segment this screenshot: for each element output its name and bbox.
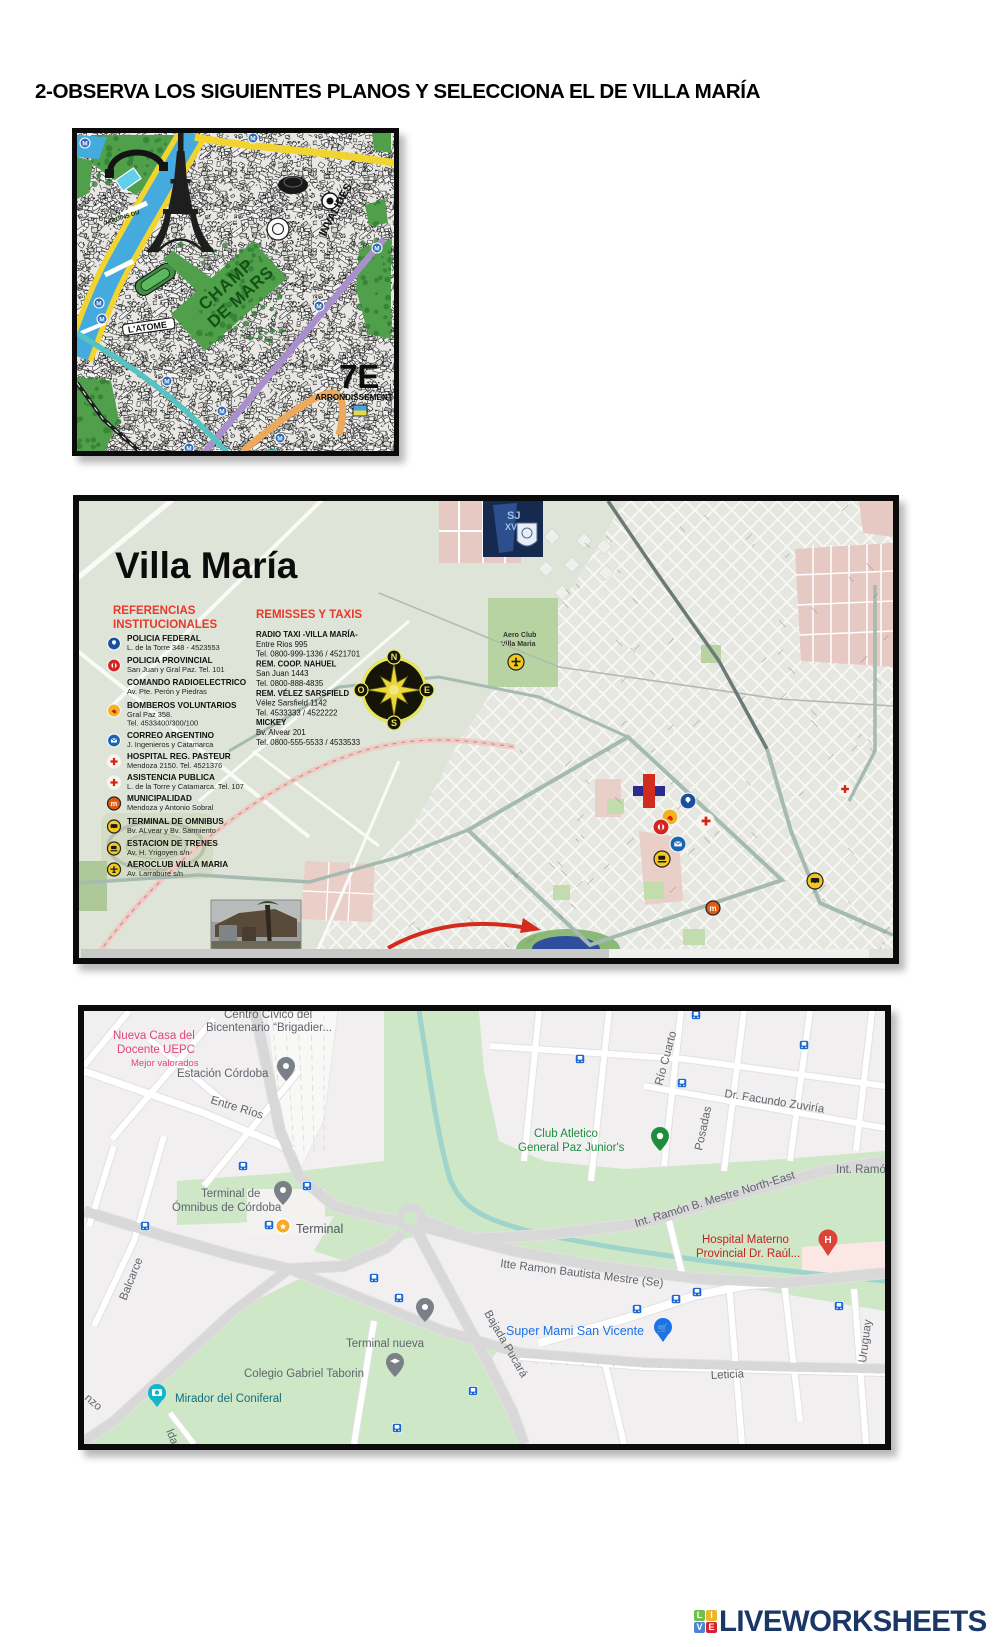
svg-text:🛒: 🛒 [657,1322,668,1333]
svg-text:MICKEY: MICKEY [256,718,287,727]
svg-text:ARRONDISSEMENT: ARRONDISSEMENT [315,393,393,402]
svg-text:Terminal: Terminal [296,1222,343,1236]
svg-text:POLICIA FEDERAL: POLICIA FEDERAL [127,634,201,643]
svg-text:M: M [186,445,191,451]
svg-text:Tel. 4533400/300/100: Tel. 4533400/300/100 [127,719,198,728]
svg-text:INSTITUCIONALES: INSTITUCIONALES [113,619,217,631]
svg-text:m: m [709,904,716,913]
svg-text:M: M [250,135,255,142]
svg-text:Vélez Sarsfield 1142: Vélez Sarsfield 1142 [256,699,327,708]
svg-text:BOMBEROS VOLUNTARIOS: BOMBEROS VOLUNTARIOS [127,701,237,710]
svg-text:Mendoza y Antonio Sobral: Mendoza y Antonio Sobral [127,803,214,812]
svg-text:Leticia: Leticia [711,1368,745,1382]
svg-text:Bicentenario “Brigadier...: Bicentenario “Brigadier... [206,1022,332,1034]
svg-text:E: E [424,685,430,695]
svg-text:Entre Rios 995: Entre Rios 995 [256,640,308,649]
svg-text:HOSPITAL REG. PASTEUR: HOSPITAL REG. PASTEUR [127,752,231,761]
svg-text:M: M [164,378,169,385]
svg-text:XV: XV [505,522,517,532]
svg-text:REMISSES Y TAXIS: REMISSES Y TAXIS [256,609,362,621]
svg-text:Super Mami San Vicente: Super Mami San Vicente [506,1324,644,1338]
svg-text:M: M [219,408,224,415]
svg-text:Aero Club: Aero Club [503,632,536,639]
svg-text:M: M [374,245,379,252]
svg-text:Tel. 4533333 / 4522222: Tel. 4533333 / 4522222 [256,708,338,717]
svg-text:Tel. 0800-555-5533 / 4533533: Tel. 0800-555-5533 / 4533533 [256,738,360,747]
svg-text:Centro Cívico del: Centro Cívico del [224,1011,312,1021]
svg-text:M: M [96,300,101,307]
svg-text:Tel. 0800-999-1336 / 4521701: Tel. 0800-999-1336 / 4521701 [256,650,360,659]
svg-text:AEROCLUB VILLA MARIA: AEROCLUB VILLA MARIA [127,860,228,869]
svg-text:Terminal nueva: Terminal nueva [346,1338,425,1350]
svg-text:REFERENCIAS: REFERENCIAS [113,605,196,617]
svg-text:Bv. ALvear y Bv. Sarmiento: Bv. ALvear y Bv. Sarmiento [127,826,216,835]
svg-text:Provincial Dr. Raúl...: Provincial Dr. Raúl... [696,1248,800,1260]
svg-text:M: M [82,140,87,147]
svg-text:O: O [357,685,364,695]
svg-text:Av. Larrabure s/n: Av. Larrabure s/n [127,869,183,878]
svg-text:Bv. Alvear 201: Bv. Alvear 201 [256,728,306,737]
svg-text:San Juan 1443: San Juan 1443 [256,669,308,678]
svg-text:Villa María: Villa María [115,545,298,586]
svg-text:Nueva Casa del: Nueva Casa del [113,1030,195,1042]
svg-text:N: N [391,652,398,662]
svg-text:TERMINAL DE OMNIBUS: TERMINAL DE OMNIBUS [127,817,224,826]
svg-text:Club Atletico: Club Atletico [534,1128,598,1140]
svg-text:L. de la Torre 348 - 4523553: L. de la Torre 348 - 4523553 [127,643,220,652]
svg-text:Ómnibus de Córdoba: Ómnibus de Córdoba [172,1201,282,1214]
svg-text:COMANDO RADIOELECTRICO: COMANDO RADIOELECTRICO [127,678,247,687]
svg-text:RADIO TAXI -VILLA MARÍA-: RADIO TAXI -VILLA MARÍA- [256,630,358,639]
svg-text:POLICIA PROVINCIAL: POLICIA PROVINCIAL [127,656,213,665]
svg-text:Estación Córdoba: Estación Córdoba [177,1068,269,1080]
svg-text:Docente UEPC: Docente UEPC [117,1044,195,1056]
svg-text:Tel. 0800-888-4835: Tel. 0800-888-4835 [256,679,324,688]
svg-text:H: H [824,1235,831,1246]
svg-text:Hospital Materno: Hospital Materno [702,1234,789,1246]
svg-text:CORREO ARGENTINO: CORREO ARGENTINO [127,731,215,740]
svg-text:SJ: SJ [507,510,520,522]
svg-text:Int. Ramó: Int. Ramó [836,1164,885,1176]
svg-text:M: M [277,435,282,442]
svg-text:M: M [316,303,321,310]
svg-text:★: ★ [279,1222,287,1232]
svg-text:m: m [111,799,118,808]
svg-text:M: M [99,316,104,323]
svg-text:Mendoza 2150. Tel. 4521376: Mendoza 2150. Tel. 4521376 [127,761,222,770]
svg-text:General Paz Junior's: General Paz Junior's [518,1142,625,1154]
svg-text:Av. Pte. Perón y Piedras: Av. Pte. Perón y Piedras [127,687,207,696]
svg-text:J. Ingenieros y Catamarca: J. Ingenieros y Catamarca [127,740,214,749]
svg-text:Av. H. Yrigoyen s/n: Av. H. Yrigoyen s/n [127,848,189,857]
svg-text:L. de la Torre y Catamarca. Te: L. de la Torre y Catamarca. Tel. 107 [127,782,244,791]
svg-text:REM. COOP. NAHUEL: REM. COOP. NAHUEL [256,659,337,668]
svg-text:MUNICIPALIDAD: MUNICIPALIDAD [127,794,192,803]
svg-text:ASISTENCIA PUBLICA: ASISTENCIA PUBLICA [127,773,215,782]
svg-text:S: S [391,718,397,728]
svg-text:ESTACION DE TRENES: ESTACION DE TRENES [127,839,218,848]
svg-text:REM. VÉLEZ SARSFIELD: REM. VÉLEZ SARSFIELD [256,689,350,698]
svg-text:San Juan y Gral Paz. Tel. 101: San Juan y Gral Paz. Tel. 101 [127,665,225,674]
svg-text:Colegio Gabriel Taborin: Colegio Gabriel Taborin [244,1368,364,1380]
svg-text:Mirador del Coniferal: Mirador del Coniferal [175,1393,282,1405]
svg-text:Terminal de: Terminal de [201,1188,260,1200]
svg-text:7E: 7E [339,358,379,395]
